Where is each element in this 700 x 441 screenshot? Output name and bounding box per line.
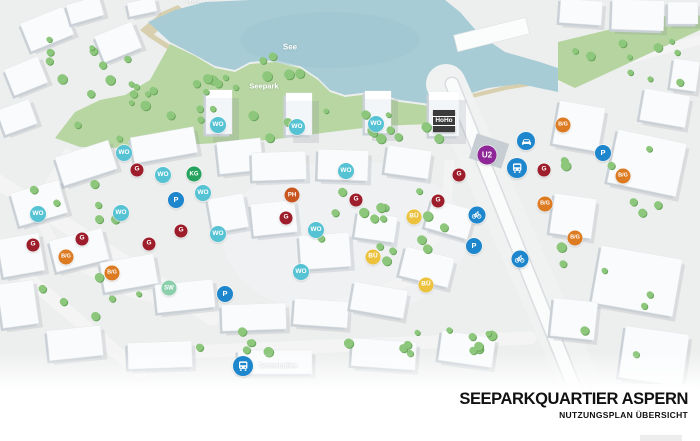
seeparkquartier-plan: SeeSeeparkSonnenalleeNord WOWOWOWOWOWOWO… bbox=[0, 0, 700, 441]
page-title: SEEPARKQUARTIER ASPERN bbox=[459, 390, 688, 409]
title-block: SEEPARKQUARTIER ASPERN NUTZUNGSPLAN ÜBER… bbox=[459, 390, 688, 420]
map-terrain bbox=[0, 0, 700, 390]
page-subtitle: NUTZUNGSPLAN ÜBERSICHT bbox=[459, 410, 688, 420]
partial-logo bbox=[640, 435, 682, 441]
